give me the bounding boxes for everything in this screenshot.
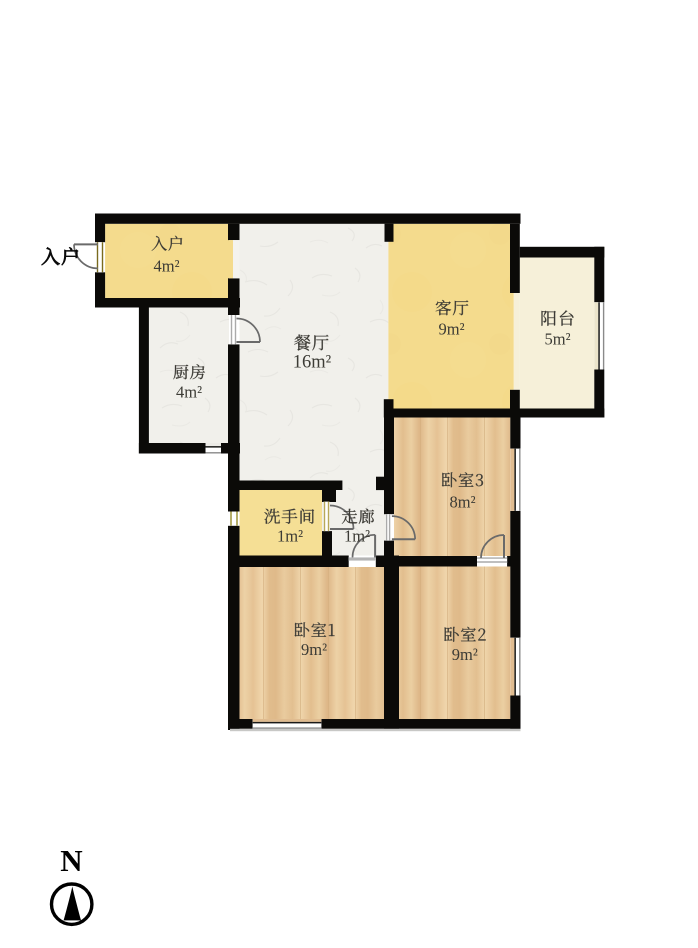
svg-text:9m²: 9m² bbox=[452, 645, 478, 664]
svg-text:N: N bbox=[60, 843, 82, 878]
svg-text:1m²: 1m² bbox=[344, 527, 370, 546]
svg-text:5m²: 5m² bbox=[544, 330, 570, 349]
svg-text:4m²: 4m² bbox=[176, 383, 202, 402]
svg-text:9m²: 9m² bbox=[438, 320, 464, 339]
svg-text:8m²: 8m² bbox=[449, 493, 475, 512]
svg-text:16m²: 16m² bbox=[293, 353, 332, 373]
svg-text:1m²: 1m² bbox=[277, 527, 303, 546]
svg-text:4m²: 4m² bbox=[153, 257, 179, 276]
svg-text:9m²: 9m² bbox=[301, 640, 327, 659]
